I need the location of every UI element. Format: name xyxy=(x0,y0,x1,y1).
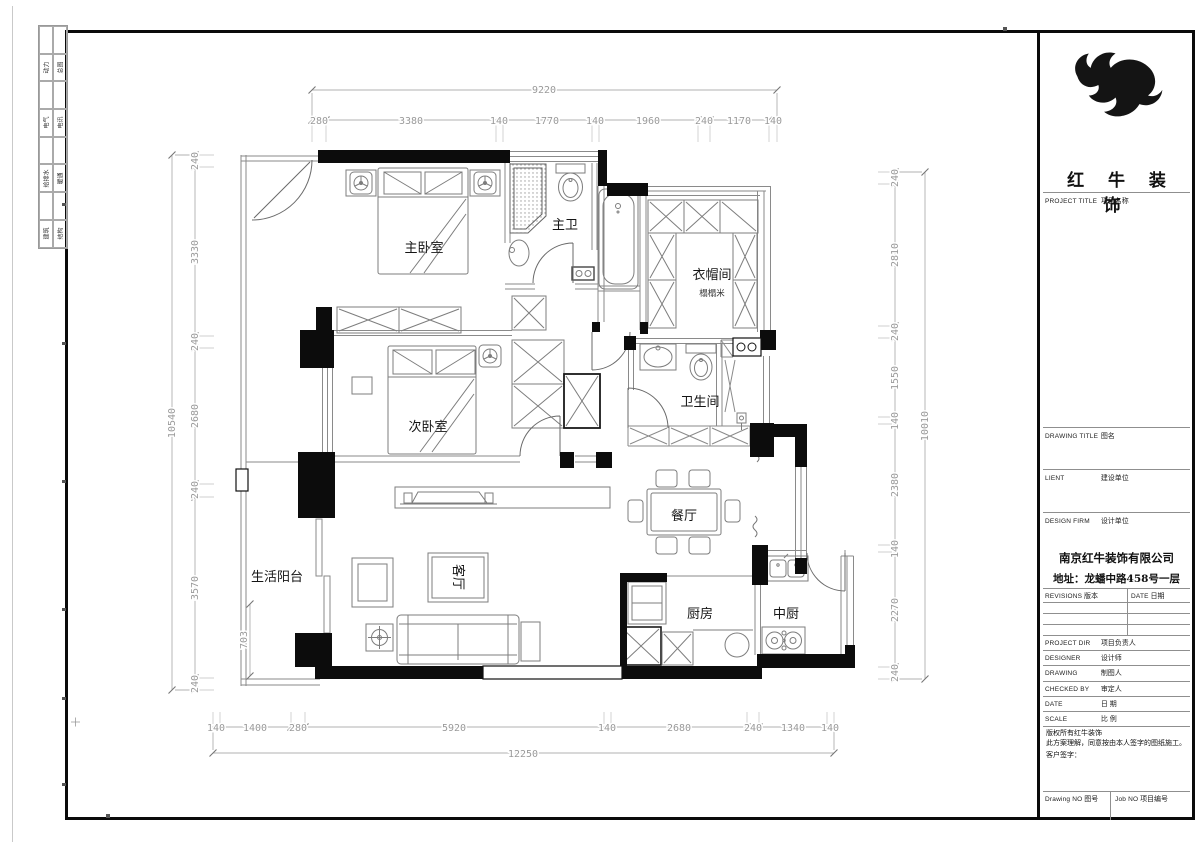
dim: 1340 xyxy=(781,723,805,734)
dim: 280 xyxy=(289,723,307,734)
doors xyxy=(252,160,845,591)
dim: 240 xyxy=(190,152,201,170)
label-kitchen: 厨房 xyxy=(687,606,713,622)
dim: 140 xyxy=(890,412,901,430)
dim: 3380 xyxy=(399,116,423,127)
ceiling-fan-icon xyxy=(350,172,372,194)
dim-total-top: 9220 xyxy=(532,85,556,96)
dim: 5920 xyxy=(442,723,466,734)
dim: 2380 xyxy=(890,473,901,497)
dim: 240 xyxy=(190,481,201,499)
label-second-bedroom: 次卧室 xyxy=(408,419,447,435)
dim: 140 xyxy=(586,116,604,127)
thin-linework xyxy=(241,152,854,687)
dim: 1400 xyxy=(243,723,267,734)
label-living: 客厅 xyxy=(450,564,466,590)
dim: 240 xyxy=(890,664,901,682)
bathroom-door xyxy=(628,388,668,428)
centering-mark xyxy=(71,718,80,727)
dim: 2270 xyxy=(890,598,901,622)
dim-total-left: 10540 xyxy=(167,408,178,438)
label-bathroom: 卫生间 xyxy=(680,395,719,410)
label-master-bath: 主卫 xyxy=(552,218,578,233)
dim-extra: 703 xyxy=(239,631,250,649)
dim: 140 xyxy=(207,723,225,734)
dim-total-bottom: 12250 xyxy=(508,749,538,760)
second-bedroom-door xyxy=(520,416,560,456)
dim: 3570 xyxy=(190,576,201,600)
dim: 240 xyxy=(890,323,901,341)
label-tatami: 榻榻米 xyxy=(699,288,725,299)
ceiling-fan-icon xyxy=(479,345,501,367)
dim: 1770 xyxy=(535,116,559,127)
dim: 240 xyxy=(190,333,201,351)
zone-markers xyxy=(62,27,1007,818)
dim: 140 xyxy=(598,723,616,734)
floor-plan: 9220 280 3380 140 1770 140 1960 240 1170… xyxy=(0,0,1200,848)
dim: 1550 xyxy=(890,366,901,390)
dim: 3330 xyxy=(190,240,201,264)
dim: 2680 xyxy=(667,723,691,734)
furniture xyxy=(337,164,808,665)
dim: 140 xyxy=(821,723,839,734)
dim: 280 xyxy=(310,116,328,127)
drawing-sheet: { "edge_strip": { "pairs": [ ["动力","总图"]… xyxy=(0,0,1200,848)
floor-lamp-icon xyxy=(366,624,393,651)
dim: 240 xyxy=(744,723,762,734)
dim: 2810 xyxy=(890,243,901,267)
dim: 140 xyxy=(764,116,782,127)
dim: 240 xyxy=(695,116,713,127)
ceiling-fan-icon xyxy=(474,172,496,194)
master-bath-door xyxy=(533,243,573,283)
label-cloakroom: 衣帽间 xyxy=(692,267,731,283)
service-door xyxy=(807,553,845,591)
dim: 1170 xyxy=(727,116,751,127)
label-cn-kitchen: 中厨 xyxy=(773,607,799,622)
label-master-bedroom: 主卧室 xyxy=(404,240,443,256)
dim: 1960 xyxy=(636,116,660,127)
dim: 140 xyxy=(490,116,508,127)
dim: 140 xyxy=(890,540,901,558)
dim: 2680 xyxy=(190,404,201,428)
terrace-door xyxy=(252,160,312,220)
dim: 240 xyxy=(890,169,901,187)
label-balcony: 生活阳台 xyxy=(251,570,303,585)
dim: 240 xyxy=(190,675,201,693)
label-dining: 餐厅 xyxy=(671,508,697,524)
dim-total-right: 10010 xyxy=(920,411,931,441)
